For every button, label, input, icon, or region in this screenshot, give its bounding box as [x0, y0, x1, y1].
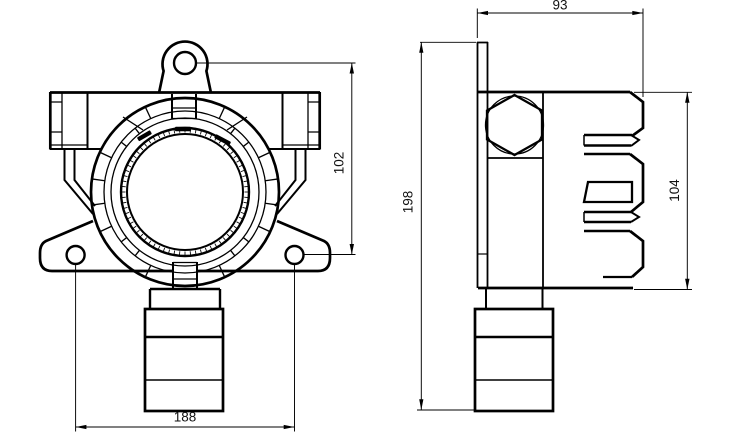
dim-arrow [350, 63, 354, 74]
body-side [478, 92, 633, 288]
dimension-198: 198 [401, 42, 477, 410]
bezel-ring [91, 94, 279, 288]
dim-arrow [350, 244, 354, 255]
sight-window [127, 134, 243, 250]
dim-arrow [76, 425, 87, 429]
dim-label-198: 198 [401, 191, 416, 214]
lug-hole [174, 52, 196, 74]
mounting-lug [159, 42, 211, 93]
side-view: 93 198 104 [401, 0, 693, 411]
dim-arrow [632, 11, 643, 15]
dim-label-93: 93 [552, 0, 567, 13]
dim-arrow [284, 425, 295, 429]
gas-detector-drawing: 102 188 [0, 0, 748, 448]
dim-arrow [419, 399, 423, 410]
dim-arrow [685, 279, 689, 290]
dim-label-188: 188 [174, 410, 197, 425]
dim-label-104: 104 [667, 179, 682, 202]
fin-slot [584, 182, 632, 202]
dimension-93: 93 [477, 0, 643, 97]
technical-drawing-page: 102 188 [0, 0, 748, 448]
mounting-hole-left [67, 246, 85, 264]
body-top-bar [50, 92, 320, 150]
mounting-plate [477, 42, 488, 288]
mounting-hole-right [286, 246, 304, 264]
front-view: 102 188 [40, 42, 356, 432]
dim-arrow [685, 92, 689, 103]
dim-arrow [419, 42, 423, 53]
mounting-ears [40, 221, 330, 271]
dim-label-102: 102 [332, 152, 347, 175]
sensor-housing-side [475, 288, 553, 411]
sensor-housing-front [145, 289, 223, 411]
hex-gland [486, 95, 544, 155]
dim-arrow [477, 11, 488, 15]
cooling-fins [584, 92, 643, 277]
